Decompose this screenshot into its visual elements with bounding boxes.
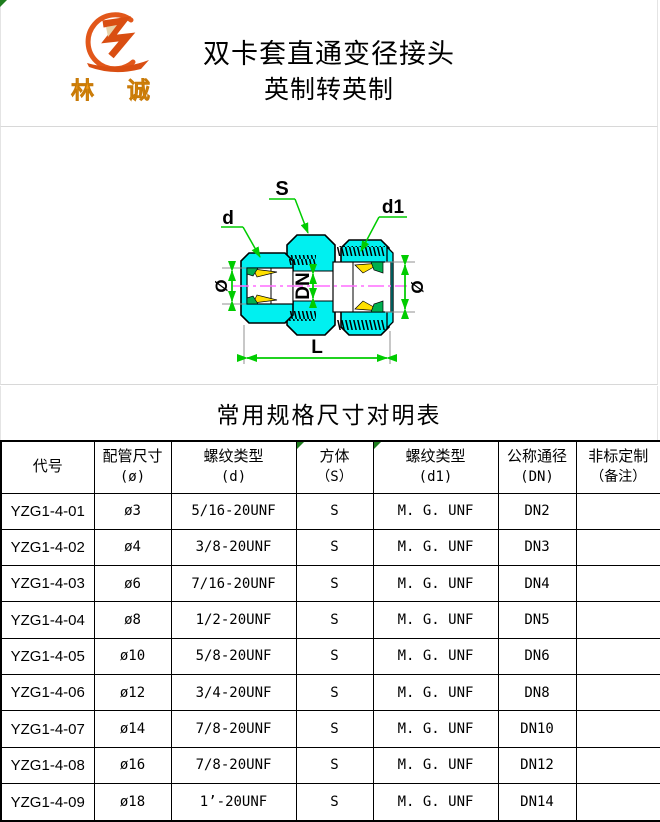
cell-thread-d1: M. G. UNF — [373, 747, 498, 783]
label-dia-left: Ø — [212, 279, 231, 292]
cell-note — [576, 784, 660, 821]
label-dia-right: Ø — [408, 280, 427, 293]
cell-note — [576, 602, 660, 638]
table-row: YZG1-4-06 ø12 3/4-20UNF S M. G. UNF DN8 — [1, 675, 660, 711]
table-row: YZG1-4-03 ø6 7/16-20UNF S M. G. UNF DN4 — [1, 566, 660, 602]
cell-body-s: S — [296, 529, 373, 565]
cell-dn: DN5 — [498, 602, 576, 638]
right-thread-hatch-bottom — [337, 320, 385, 330]
cell-body-s: S — [296, 566, 373, 602]
cell-thread-d1: M. G. UNF — [373, 529, 498, 565]
cell-code: YZG1-4-04 — [1, 602, 94, 638]
cell-pipe-size: ø4 — [94, 529, 171, 565]
cell-body-s: S — [296, 784, 373, 821]
cell-dn: DN6 — [498, 638, 576, 674]
header-text: 螺纹类型 — [374, 448, 498, 468]
cell-thread-d1: M. G. UNF — [373, 566, 498, 602]
cell-comment-flag-icon — [374, 442, 381, 449]
cell-dn: DN4 — [498, 566, 576, 602]
technical-drawing: d S d1 Ø Ø DN L — [1, 127, 659, 384]
cell-body-s: S — [296, 747, 373, 783]
cell-body-s: S — [296, 675, 373, 711]
cell-pipe-size: ø12 — [94, 675, 171, 711]
label-d1: d1 — [382, 197, 405, 218]
col-header-pipe-size: 配管尺寸 (ø) — [94, 441, 171, 493]
col-header-dn: 公称通径 (DN) — [498, 441, 576, 493]
table-title-band: 常用规格尺寸对明表 — [0, 386, 658, 440]
cell-comment-flag-icon — [297, 442, 304, 449]
cell-thread-d: 3/8-20UNF — [171, 529, 296, 565]
cell-note — [576, 566, 660, 602]
label-dn: DN — [293, 272, 314, 299]
header-text: 配管尺寸 — [95, 448, 171, 468]
col-header-thread-d: 螺纹类型 (d) — [171, 441, 296, 493]
cell-pipe-size: ø3 — [94, 493, 171, 529]
cell-pipe-size: ø6 — [94, 566, 171, 602]
cell-thread-d1: M. G. UNF — [373, 493, 498, 529]
cell-dn: DN2 — [498, 493, 576, 529]
cell-code: YZG1-4-08 — [1, 747, 94, 783]
cell-pipe-size: ø14 — [94, 711, 171, 747]
cell-dn: DN10 — [498, 711, 576, 747]
header-text: 公称通径 — [499, 448, 576, 468]
cell-code: YZG1-4-09 — [1, 784, 94, 821]
header-sub: (d1) — [374, 468, 498, 486]
cell-body-s: S — [296, 711, 373, 747]
header-row: 代号 配管尺寸 (ø) 螺纹类型 (d) 方体 （S） 螺纹类型 (d1) — [1, 441, 660, 493]
cell-body-s: S — [296, 638, 373, 674]
title-line-2: 英制转英制 — [1, 73, 657, 109]
cell-code: YZG1-4-01 — [1, 493, 94, 529]
cell-note — [576, 493, 660, 529]
cell-thread-d: 7/16-20UNF — [171, 566, 296, 602]
header-text: 代号 — [2, 458, 94, 478]
cell-thread-d: 7/8-20UNF — [171, 711, 296, 747]
cell-note — [576, 675, 660, 711]
header-text: 方体 — [297, 448, 373, 468]
table-row: YZG1-4-08 ø16 7/8-20UNF S M. G. UNF DN12 — [1, 747, 660, 783]
col-header-code: 代号 — [1, 441, 94, 493]
header-text: 螺纹类型 — [172, 448, 296, 468]
cell-dn: DN14 — [498, 784, 576, 821]
left-thread-hatch-bottom — [289, 311, 316, 321]
sheet-corner-flag-icon — [0, 0, 7, 7]
table-row: YZG1-4-05 ø10 5/8-20UNF S M. G. UNF DN6 — [1, 638, 660, 674]
cell-code: YZG1-4-07 — [1, 711, 94, 747]
table-row: YZG1-4-07 ø14 7/8-20UNF S M. G. UNF DN10 — [1, 711, 660, 747]
label-d: d — [222, 208, 234, 229]
table-row: YZG1-4-04 ø8 1/2-20UNF S M. G. UNF DN5 — [1, 602, 660, 638]
header-sub: （S） — [297, 468, 373, 486]
cell-code: YZG1-4-06 — [1, 675, 94, 711]
label-l: L — [311, 337, 323, 358]
spec-table: 代号 配管尺寸 (ø) 螺纹类型 (d) 方体 （S） 螺纹类型 (d1) — [0, 440, 660, 822]
header-text: 非标定制 — [577, 448, 660, 468]
header-sub: (d) — [172, 468, 296, 486]
table-row: YZG1-4-09 ø18 1’-20UNF S M. G. UNF DN14 — [1, 784, 660, 821]
cell-code: YZG1-4-05 — [1, 638, 94, 674]
cell-body-s: S — [296, 493, 373, 529]
cell-thread-d1: M. G. UNF — [373, 675, 498, 711]
label-s: S — [275, 178, 288, 200]
datasheet-page: 林 诚 双卡套直通变径接头 英制转英制 — [0, 0, 660, 822]
cell-thread-d1: M. G. UNF — [373, 784, 498, 821]
table-row: YZG1-4-02 ø4 3/8-20UNF S M. G. UNF DN3 — [1, 529, 660, 565]
cell-thread-d: 1’-20UNF — [171, 784, 296, 821]
cell-thread-d: 7/8-20UNF — [171, 747, 296, 783]
col-header-body-s: 方体 （S） — [296, 441, 373, 493]
fitting-body — [241, 235, 393, 335]
cell-thread-d: 5/16-20UNF — [171, 493, 296, 529]
cell-note — [576, 711, 660, 747]
cell-dn: DN8 — [498, 675, 576, 711]
cell-thread-d1: M. G. UNF — [373, 638, 498, 674]
document-title: 双卡套直通变径接头 英制转英制 — [1, 36, 657, 109]
drawing-area: d S d1 Ø Ø DN L — [0, 127, 658, 385]
cell-note — [576, 747, 660, 783]
cell-code: YZG1-4-02 — [1, 529, 94, 565]
cell-body-s: S — [296, 602, 373, 638]
cell-thread-d1: M. G. UNF — [373, 711, 498, 747]
cell-code: YZG1-4-03 — [1, 566, 94, 602]
col-header-note: 非标定制 （备注） — [576, 441, 660, 493]
cell-pipe-size: ø16 — [94, 747, 171, 783]
cell-thread-d: 1/2-20UNF — [171, 602, 296, 638]
header-sub: （备注） — [577, 468, 660, 486]
cell-dn: DN3 — [498, 529, 576, 565]
header-sub: (DN) — [499, 468, 576, 486]
col-header-thread-d1: 螺纹类型 (d1) — [373, 441, 498, 493]
table-title: 常用规格尺寸对明表 — [217, 396, 442, 430]
cell-thread-d: 3/4-20UNF — [171, 675, 296, 711]
title-line-1: 双卡套直通变径接头 — [1, 36, 657, 73]
cell-note — [576, 529, 660, 565]
cell-pipe-size: ø18 — [94, 784, 171, 821]
cell-thread-d1: M. G. UNF — [373, 602, 498, 638]
cell-thread-d: 5/8-20UNF — [171, 638, 296, 674]
cell-dn: DN12 — [498, 747, 576, 783]
left-thread-hatch-top — [289, 255, 316, 265]
header-band: 林 诚 双卡套直通变径接头 英制转英制 — [0, 0, 658, 127]
header-sub: (ø) — [95, 468, 171, 486]
table-row: YZG1-4-01 ø3 5/16-20UNF S M. G. UNF DN2 — [1, 493, 660, 529]
cell-pipe-size: ø10 — [94, 638, 171, 674]
cell-note — [576, 638, 660, 674]
cell-pipe-size: ø8 — [94, 602, 171, 638]
